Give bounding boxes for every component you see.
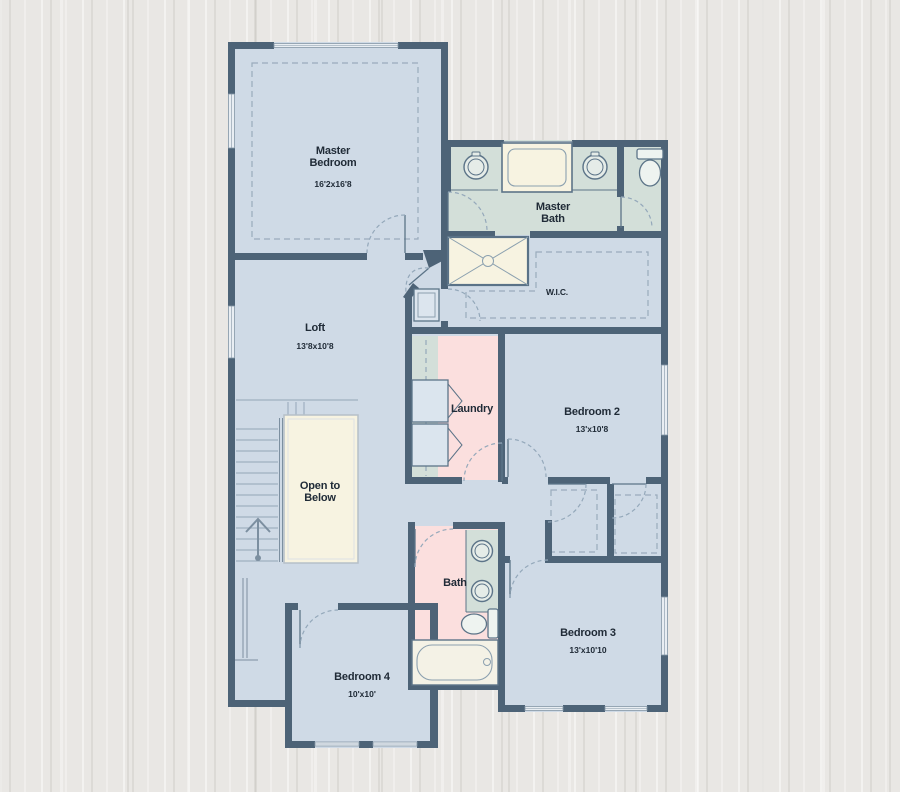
- garden-tub-icon: [502, 143, 572, 192]
- label-bedroom4: Bedroom 4: [334, 671, 390, 683]
- floor-plan: Master Bedroom 16'2x16'8 Master Bath W.I…: [0, 0, 900, 792]
- label-master-bedroom: Master Bedroom: [310, 145, 357, 169]
- toilet-icon: [637, 149, 663, 186]
- dims-master-bedroom: 16'2x16'8: [314, 178, 351, 190]
- dims-bedroom3: 13'x10'10: [569, 644, 606, 656]
- label-loft: Loft: [305, 322, 325, 334]
- sink-icon: [472, 581, 493, 602]
- hall-cabinet: [414, 289, 439, 321]
- label-open-to-below: Open to Below: [300, 480, 340, 504]
- label-master-bath: Master Bath: [536, 201, 570, 225]
- sink-icon: [472, 541, 493, 562]
- label-laundry: Laundry: [451, 403, 493, 415]
- shower-icon: [448, 237, 528, 285]
- dims-loft: 13'8x10'8: [296, 340, 333, 352]
- label-bath: Bath: [443, 577, 467, 589]
- floor-plan-drawing: [0, 0, 900, 792]
- dims-bedroom4: 10'x10': [348, 688, 376, 700]
- label-bedroom3: Bedroom 3: [560, 627, 616, 639]
- bathtub-icon: [412, 640, 498, 685]
- label-wic: W.I.C.: [546, 286, 568, 298]
- dims-bedroom2: 13'x10'8: [576, 423, 608, 435]
- label-bedroom2: Bedroom 2: [564, 406, 620, 418]
